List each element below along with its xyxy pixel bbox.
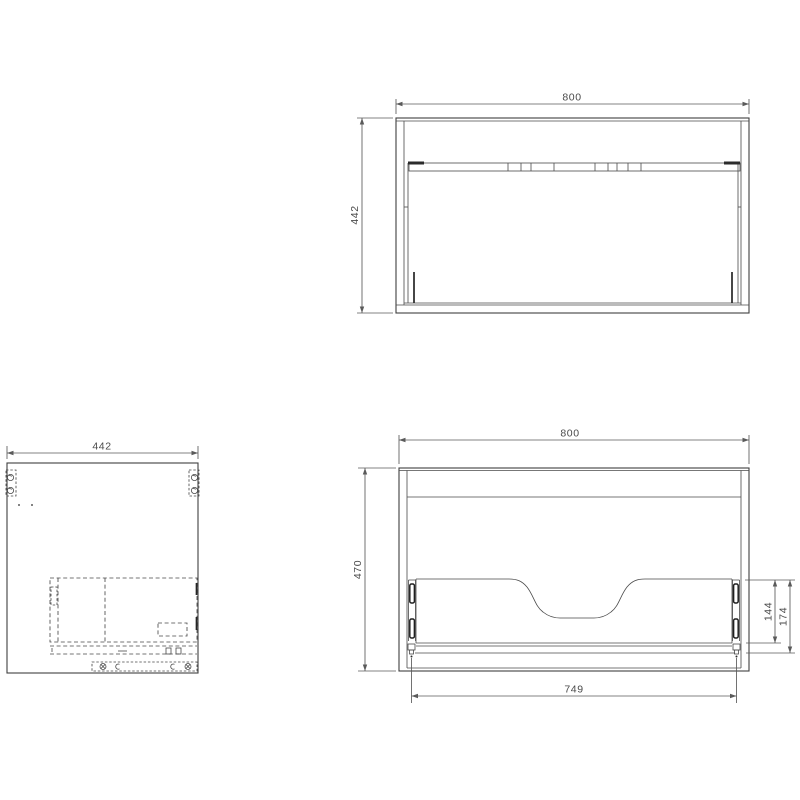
arrowhead [396,102,403,106]
clip-icon [116,664,120,669]
arrowhead [773,637,777,644]
front-carcass-outline [396,118,749,313]
front-view: 800 442 [349,92,749,314]
right-drawer-slide [733,580,741,658]
dim-front-height: 442 [349,118,393,313]
dim-label: 144 [763,602,775,621]
screw-icon [100,664,106,670]
rail-slot-ticks [508,163,641,171]
slide-foot [733,644,740,650]
slide-slot [410,584,415,603]
dim-label: 749 [564,684,583,696]
vanity-cabinet-drawing: 800 442 [0,0,800,800]
slide-foot [408,644,415,650]
dim-label: 470 [352,560,364,579]
dim-back-inner-width: 749 [412,658,737,703]
runner-bracket [176,648,181,654]
technical-drawing-canvas: 800 442 [0,0,800,800]
dim-back-height: 470 [352,468,396,671]
drawer-damper-hidden [158,623,187,636]
arrowhead [730,694,737,698]
dowel-hole-dot [18,504,20,506]
dim-label: 800 [562,92,581,104]
dim-label: 800 [560,428,579,440]
dim-label: 442 [349,205,361,224]
back-carcass-outline [399,468,749,671]
slide-foot-pin [410,650,414,654]
runner-clip-hidden [51,587,57,605]
arrowhead [7,451,14,455]
hidden-drawer-assembly [50,578,197,671]
rail-left-bracket [408,162,424,165]
side-panel-outline [7,463,198,673]
runner-bracket [166,648,171,654]
slide-slot [734,584,739,603]
left-drawer-slide [408,580,416,658]
rail-right-bracket [724,162,740,165]
arrowhead [360,307,364,314]
dim-back-width: 800 [399,428,749,465]
dim-front-width: 800 [396,92,749,115]
arrowhead [360,118,364,125]
arrowhead [363,468,367,475]
slide-foot-pin [735,650,739,654]
drawer-box-hidden [50,578,197,642]
dowel-hole-dot [31,504,33,506]
arrowhead [363,665,367,672]
drawer-back-panel [415,579,735,653]
clip-icon [171,664,175,669]
dim-side-depth: 442 [7,441,198,460]
arrowhead [399,438,406,442]
arrowhead [773,580,777,587]
slide-foot-dot [411,656,413,658]
arrowhead [743,438,750,442]
arrowhead [743,102,750,106]
dim-label: 174 [778,607,790,626]
basin-cutout-curve [416,579,732,618]
slide-foot-dot [736,656,738,658]
front-hanging-rail [408,162,740,172]
slide-slot [734,619,739,638]
slide-slot [410,619,415,638]
arrowhead [192,451,199,455]
dim-label: 442 [92,441,111,453]
side-view: 442 [6,441,199,674]
mounting-band-hidden [92,662,197,671]
arrowhead [788,647,792,654]
arrowhead [788,580,792,587]
screw-icon [185,664,191,670]
arrowhead [412,694,419,698]
back-view: 800 470 749 144 [352,428,795,704]
rail-outline [409,163,740,171]
